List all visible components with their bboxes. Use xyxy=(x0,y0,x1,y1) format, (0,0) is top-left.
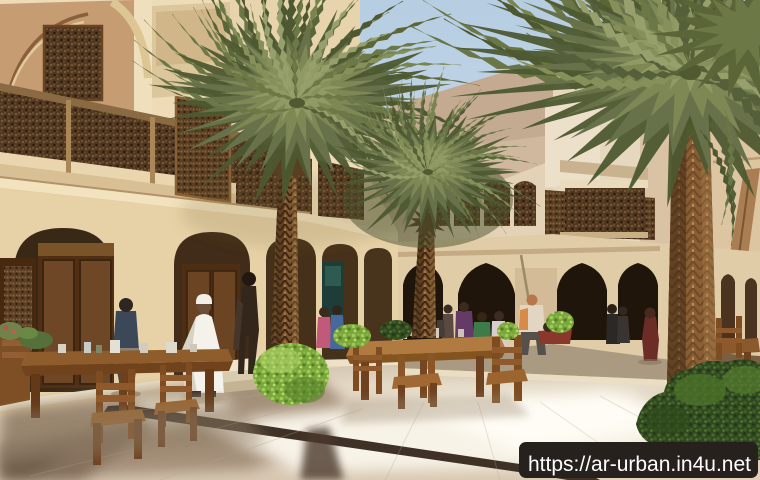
svg-text:https://ar-urban.in4u.net: https://ar-urban.in4u.net xyxy=(528,453,751,476)
